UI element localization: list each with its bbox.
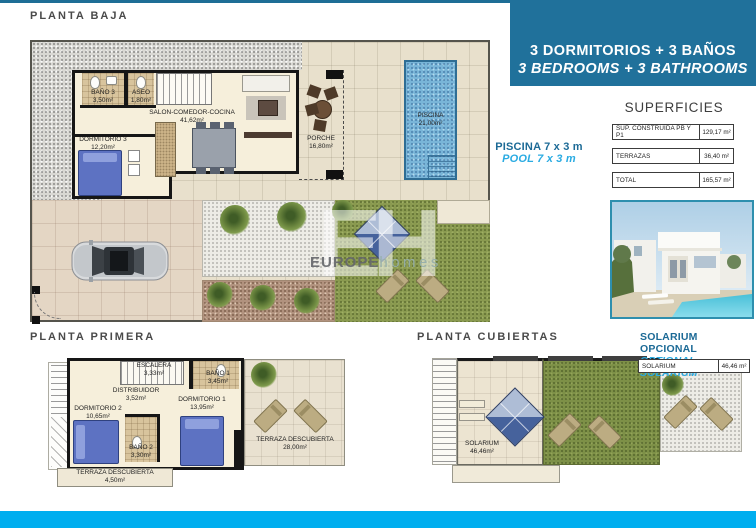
superficies-row: SUP. CONSTRUIDA PB Y P1 129,17 m² xyxy=(612,124,734,140)
pool-steps xyxy=(428,155,455,178)
bed xyxy=(73,420,119,464)
kitchen-island xyxy=(155,122,176,177)
bedrooms-bathrooms-banner: 3 DORMITORIOS + 3 BAÑOS 3 BEDROOMS + 3 B… xyxy=(510,0,756,86)
planta-baja-title: PLANTA BAJA xyxy=(30,10,128,22)
room-label: SALON-COMEDOR-COCINA 41,62m² xyxy=(142,109,242,125)
lawn-side-pad xyxy=(437,200,490,224)
roof-edge-strip xyxy=(452,465,560,483)
room-label: PORCHE 16,80m² xyxy=(298,135,344,151)
room-label: BAÑO 2 3,30m² xyxy=(123,444,159,460)
room-label: BAÑO 3 3,50m² xyxy=(80,89,126,105)
room-label: TERRAZA DESCUBIERTA 4,50m² xyxy=(60,469,170,485)
stairs xyxy=(156,73,212,105)
room-label: DORMITORIO 2 10,65m² xyxy=(68,405,128,421)
tv-unit xyxy=(244,132,292,138)
room-label: BAÑO 1 3,45m² xyxy=(196,370,240,386)
room-label: TERRAZA DESCUBIERTA 28,00m² xyxy=(250,436,340,452)
villa-photo xyxy=(610,200,754,319)
banner-line-es: 3 DORMITORIOS + 3 BAÑOS xyxy=(530,43,736,59)
room-label: ESCALERA 3,33m² xyxy=(118,362,190,378)
room-label: ASEO 1,80m² xyxy=(126,89,156,105)
solarium-note-es: SOLARIUM OPCIONAL xyxy=(640,331,756,355)
superficies-row: TOTAL 165,57 m² xyxy=(612,172,734,188)
bottom-accent-bar xyxy=(0,511,756,528)
room-label: DISTRIBUIDOR 3,52m² xyxy=(106,387,166,403)
gravel-area xyxy=(32,42,302,70)
coffee-table xyxy=(258,100,278,116)
brochure-page: 3 DORMITORIOS + 3 BAÑOS 3 BEDROOMS + 3 B… xyxy=(0,0,756,528)
top-accent-line xyxy=(0,0,512,3)
gravel-area xyxy=(32,42,72,200)
banner-line-en: 3 BEDROOMS + 3 BATHROOMS xyxy=(518,61,748,77)
planta-baja-plan: PISCINA 21,00m² xyxy=(30,40,490,322)
dining-table xyxy=(192,128,236,168)
room-label: DORMITORIO 3 12,20m² xyxy=(74,136,132,152)
pool-size-note: PISCINA 7 x 3 m POOL 7 x 3 m xyxy=(488,141,590,165)
planta-primera-plan: ESCALERA 3,33m² DISTRIBUIDOR 3,52m² BAÑO… xyxy=(48,358,346,488)
car-top-view xyxy=(70,238,170,284)
sofa xyxy=(242,75,290,92)
solarium-table-row: SOLARIUM 46,46 m² xyxy=(638,359,750,373)
superficies-title: SUPERFICIES xyxy=(613,100,735,115)
bed xyxy=(78,150,122,196)
room-label: PISCINA 21,00m² xyxy=(404,112,457,128)
room-label: SOLARIUM 46,46m² xyxy=(460,440,504,456)
exterior-stairs xyxy=(432,358,457,465)
planta-primera-title: PLANTA PRIMERA xyxy=(30,331,155,343)
bed xyxy=(180,416,224,466)
pool-note-en: POOL 7 x 3 m xyxy=(488,153,590,165)
planta-cubiertas-title: PLANTA CUBIERTAS xyxy=(417,331,559,343)
superficies-row: TERRAZAS 36,40 m² xyxy=(612,148,734,164)
room-label: DORMITORIO 1 13,95m² xyxy=(166,396,238,412)
pool-note-es: PISCINA 7 x 3 m xyxy=(488,141,590,153)
